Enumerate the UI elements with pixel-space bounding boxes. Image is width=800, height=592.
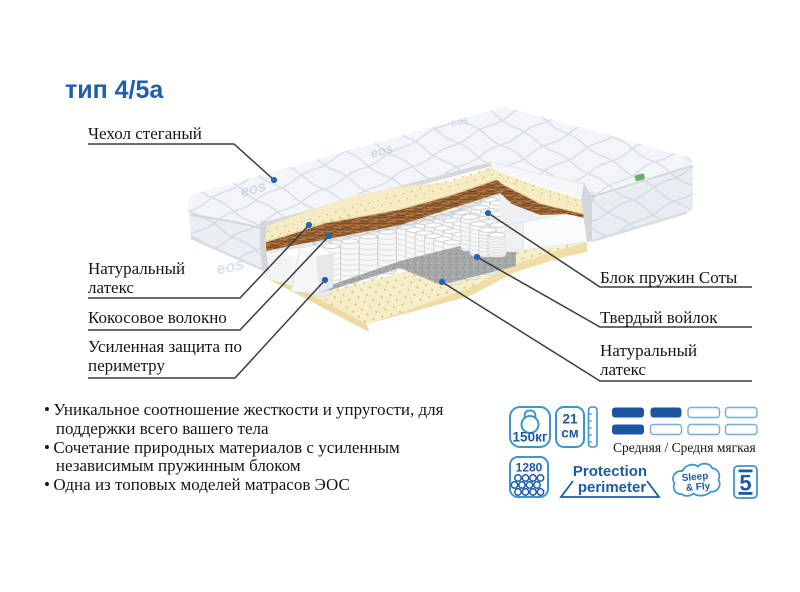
svg-text:150кг: 150кг: [513, 430, 548, 445]
svg-text:см: см: [561, 426, 579, 441]
svg-text:Protection: Protection: [573, 463, 647, 480]
svg-text:5: 5: [739, 471, 751, 496]
svg-text:21: 21: [562, 412, 578, 427]
svg-text:Средняя / Средня мягкая: Средняя / Средня мягкая: [613, 440, 756, 455]
svg-text:& Fly: & Fly: [685, 481, 711, 494]
svg-text:perimeter: perimeter: [578, 479, 647, 496]
svg-text:1280: 1280: [516, 461, 543, 475]
